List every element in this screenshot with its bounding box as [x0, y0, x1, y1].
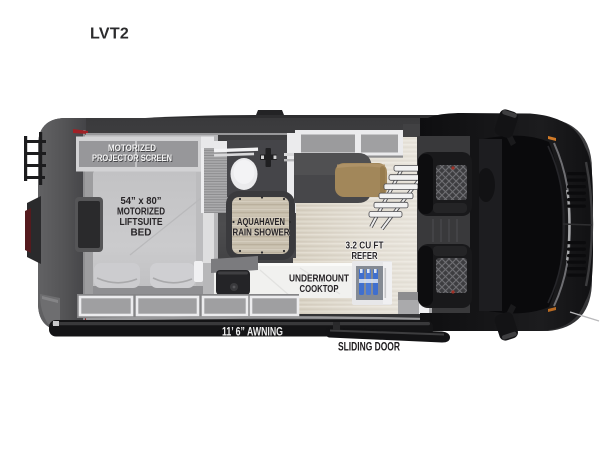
svg-text:RAIN SHOWER: RAIN SHOWER: [233, 228, 291, 239]
svg-text:BED: BED: [131, 228, 152, 239]
svg-text:COOKTOP: COOKTOP: [300, 283, 339, 295]
svg-text:MOTORIZED: MOTORIZED: [108, 143, 156, 153]
svg-text:LVT2: LVT2: [90, 26, 129, 43]
svg-text:AQUAHAVEN: AQUAHAVEN: [237, 217, 285, 228]
svg-text:SLIDING DOOR: SLIDING DOOR: [338, 340, 400, 354]
svg-text:LIFTSUITE: LIFTSUITE: [120, 217, 163, 228]
svg-text:54” x 80”: 54” x 80”: [121, 196, 162, 207]
svg-text:MOTORIZED: MOTORIZED: [117, 207, 165, 218]
svg-text:PROJECTOR SCREEN: PROJECTOR SCREEN: [92, 153, 172, 163]
svg-text:11’ 6” AWNING: 11’ 6” AWNING: [222, 325, 283, 339]
svg-text:REFER: REFER: [352, 250, 378, 262]
